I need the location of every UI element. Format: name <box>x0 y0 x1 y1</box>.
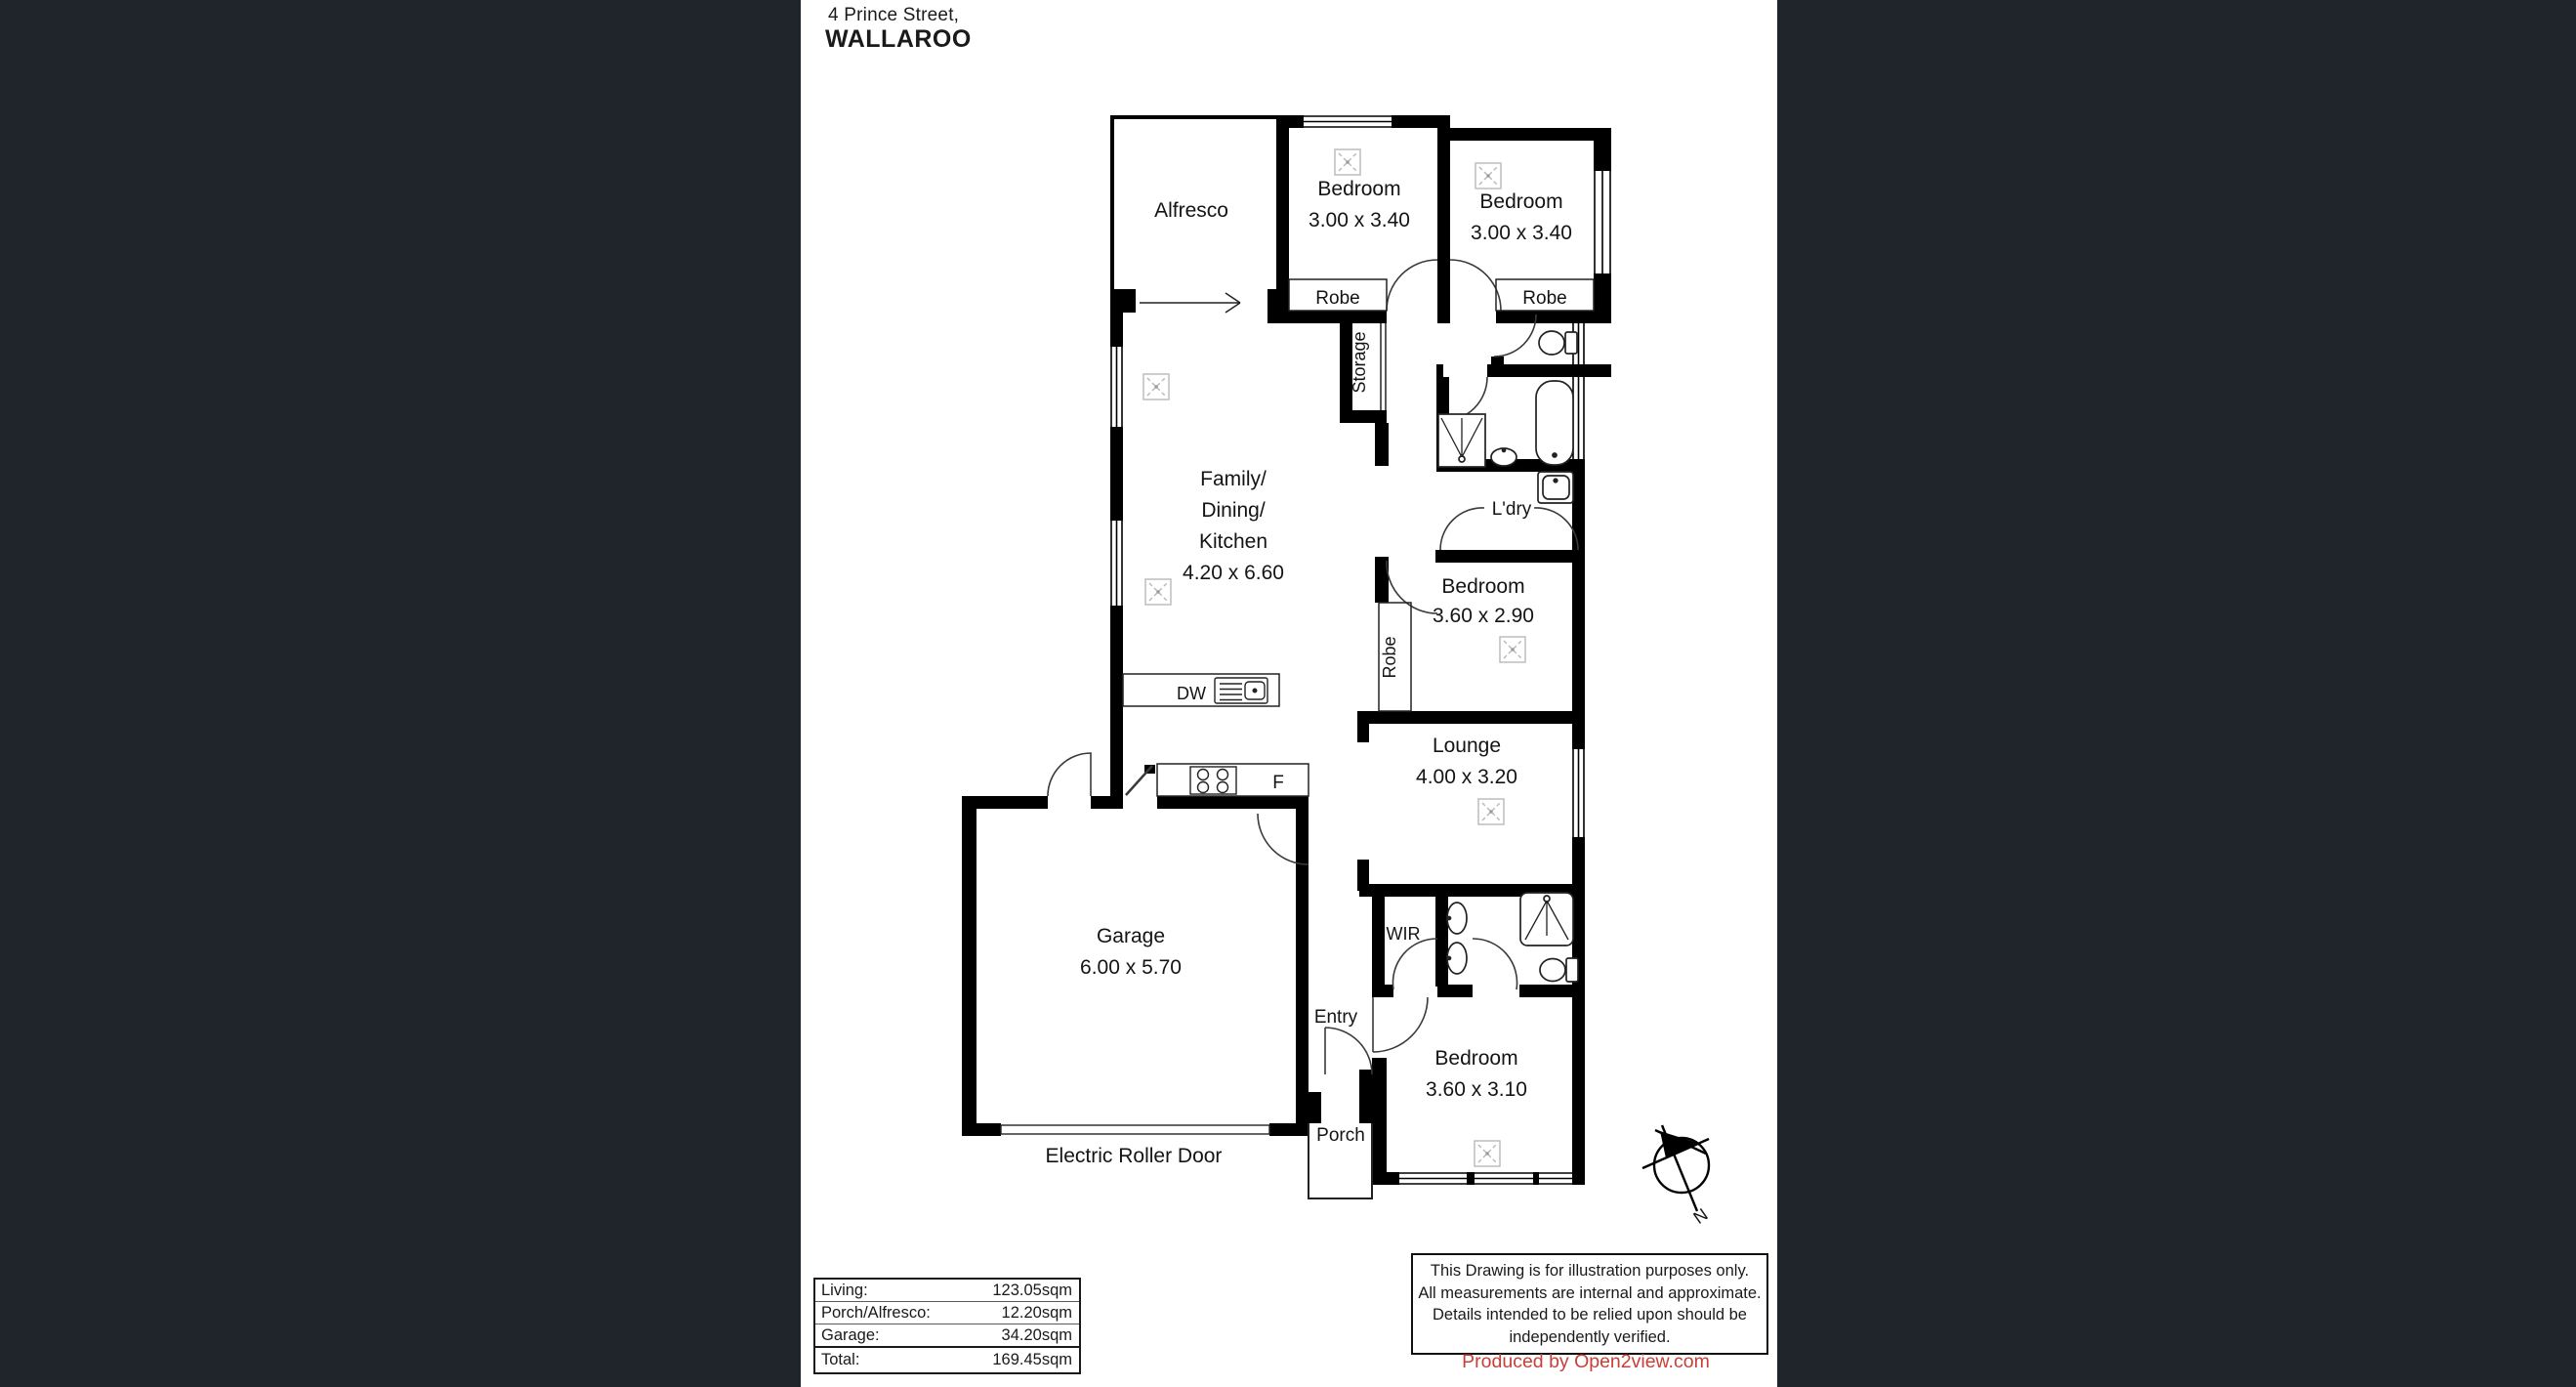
family-label-2: Dining/ <box>1201 499 1266 522</box>
ceiling-fan-icon <box>1143 374 1169 399</box>
lounge-label: Lounge <box>1433 735 1501 757</box>
window-lounge-right <box>1572 749 1585 837</box>
laundry-trough-fixture <box>1538 472 1573 503</box>
ceiling-fan-icon <box>1475 1141 1500 1166</box>
ensuite-basin-fixtures <box>1447 903 1467 974</box>
disclaimer-line: All measurements are internal and approx… <box>1415 1282 1765 1305</box>
bath-fixture <box>1536 381 1573 465</box>
bedroom1-label: Bedroom <box>1317 178 1400 200</box>
door-arcs <box>1048 260 1578 1074</box>
door-ensuite <box>1473 939 1517 989</box>
ceiling-fan-icon <box>1500 637 1525 662</box>
family-label-3: Kitchen <box>1199 530 1267 553</box>
letterbox-background: 4 Prince Street, WALLAROO <box>0 0 2576 1387</box>
robe2-label: Robe <box>1522 288 1566 309</box>
door-garage-internal <box>1048 753 1091 796</box>
wir-label: WIR <box>1387 924 1421 944</box>
bedroom1-dims: 3.00 x 3.40 <box>1309 209 1410 231</box>
garage-dims: 6.00 x 5.70 <box>1080 956 1182 979</box>
kitchen-sink-fixture <box>1215 678 1267 703</box>
roller-door-label: Electric Roller Door <box>1046 1145 1223 1167</box>
porch-label: Porch <box>1316 1125 1365 1146</box>
floorplan-page: 4 Prince Street, WALLAROO <box>801 0 1777 1387</box>
area-value: 123.05sqm <box>992 1281 1072 1300</box>
bedroom4-label: Bedroom <box>1434 1047 1517 1070</box>
disclaimer-box: This Drawing is for illustration purpose… <box>1411 1253 1768 1355</box>
floorplan-drawing: Alfresco Bedroom 3.00 x 3.40 Bedroom 3.0… <box>801 0 1777 1387</box>
window-bathroom-right <box>1572 377 1585 459</box>
ensuite-toilet-fixture <box>1540 958 1578 982</box>
bedroom2-dims: 3.00 x 3.40 <box>1471 222 1572 244</box>
total-label: Total: <box>821 1350 859 1370</box>
door-kitchen-angled <box>1126 766 1152 795</box>
lounge-dims: 4.00 x 3.20 <box>1416 766 1517 788</box>
disclaimer-line: Details intended to be relied upon shoul… <box>1415 1304 1765 1326</box>
family-dims: 4.20 x 6.60 <box>1183 562 1284 584</box>
entry-label: Entry <box>1314 1007 1358 1028</box>
cooktop-fixture <box>1190 767 1236 794</box>
area-table: Living: 123.05sqm Porch/Alfresco: 12.20s… <box>813 1278 1081 1374</box>
storage-label: Storage <box>1350 331 1369 393</box>
door-bedroom1 <box>1387 260 1437 311</box>
ceiling-fan-icon <box>1335 149 1360 175</box>
window-bedroom2-right <box>1594 171 1611 273</box>
disclaimer-line: This Drawing is for illustration purpose… <box>1415 1260 1765 1282</box>
ceiling-fan-icon <box>1145 579 1171 605</box>
table-row: Porch/Alfresco: 12.20sqm <box>815 1302 1079 1324</box>
wc-toilet-fixture <box>1539 331 1577 355</box>
bedroom3-label: Bedroom <box>1441 575 1524 598</box>
window-bedroom1-top <box>1304 115 1392 128</box>
robe3-label: Robe <box>1380 636 1399 678</box>
fridge-label: F <box>1272 773 1284 793</box>
windows-bedroom4-bottom <box>1399 1173 1572 1184</box>
door-bedroom2 <box>1450 260 1501 311</box>
bedroom2-label: Bedroom <box>1479 190 1562 213</box>
dishwasher-label: DW <box>1177 684 1206 703</box>
vanity-basin-fixture <box>1491 448 1517 466</box>
area-label: Garage: <box>821 1325 880 1345</box>
door-entry <box>1325 1028 1372 1074</box>
bedroom4-dims: 3.60 x 3.10 <box>1426 1078 1527 1101</box>
area-label: Porch/Alfresco: <box>821 1303 931 1323</box>
shower-fixture <box>1438 414 1485 467</box>
window-family-left-upper <box>1110 347 1123 427</box>
entry-arrow <box>1140 293 1240 313</box>
table-row: Garage: 34.20sqm <box>815 1324 1079 1346</box>
compass-icon <box>1642 1125 1709 1211</box>
ceiling-fan-icon <box>1478 799 1504 824</box>
door-bedroom4 <box>1373 997 1428 1052</box>
window-family-left-lower <box>1110 521 1123 606</box>
total-value: 169.45sqm <box>992 1350 1072 1370</box>
laundry-label: L'dry <box>1492 499 1532 520</box>
ceiling-fan-icon <box>1475 163 1501 189</box>
table-total-row: Total: 169.45sqm <box>815 1346 1079 1372</box>
door-laundry-right <box>1534 508 1578 550</box>
area-value: 12.20sqm <box>1002 1303 1072 1323</box>
alfresco-label: Alfresco <box>1154 199 1228 222</box>
robe1-label: Robe <box>1315 288 1359 309</box>
area-label: Living: <box>821 1281 868 1300</box>
compass-north-label: N <box>1689 1204 1711 1228</box>
ensuite-shower-fixture <box>1520 893 1573 946</box>
door-wir <box>1392 939 1437 989</box>
roller-door-line <box>1001 1125 1269 1134</box>
area-value: 34.20sqm <box>1002 1325 1072 1345</box>
bedroom3-dims: 3.60 x 2.90 <box>1433 605 1534 627</box>
disclaimer-line: independently verified. <box>1415 1326 1765 1349</box>
door-laundry-left <box>1440 508 1484 550</box>
garage-label: Garage <box>1097 925 1165 947</box>
storage-open-edge <box>1381 323 1386 410</box>
door-bedroom3 <box>1387 561 1437 613</box>
producer-credit: Produced by Open2view.com <box>1411 1351 1761 1373</box>
windows <box>1110 115 1611 1184</box>
table-row: Living: 123.05sqm <box>815 1280 1079 1302</box>
family-label-1: Family/ <box>1200 468 1267 490</box>
